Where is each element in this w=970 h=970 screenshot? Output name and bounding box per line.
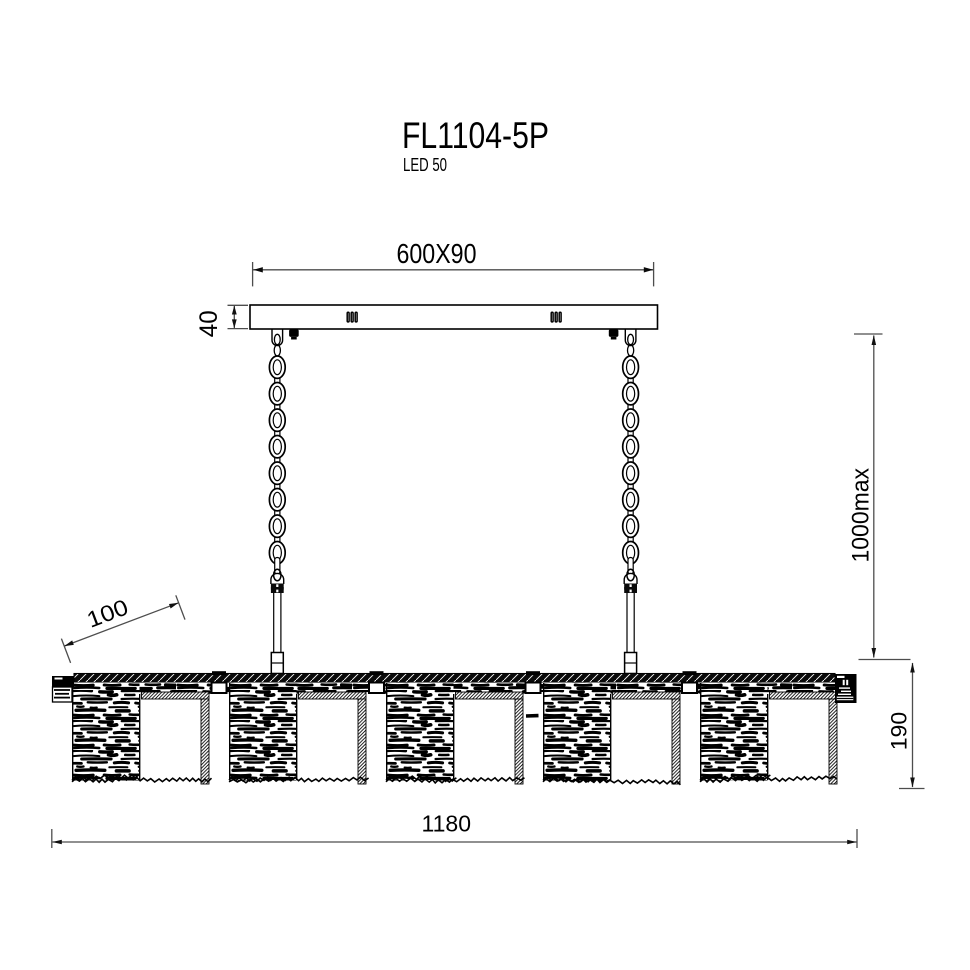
- svg-text:1000max: 1000max: [848, 468, 875, 563]
- svg-text:1180: 1180: [422, 811, 472, 837]
- svg-text:600X90: 600X90: [397, 238, 477, 269]
- svg-text:FL1104-5P: FL1104-5P: [402, 115, 549, 156]
- svg-text:LED 50: LED 50: [403, 155, 447, 175]
- svg-text:40: 40: [195, 310, 223, 337]
- svg-text:190: 190: [886, 712, 911, 751]
